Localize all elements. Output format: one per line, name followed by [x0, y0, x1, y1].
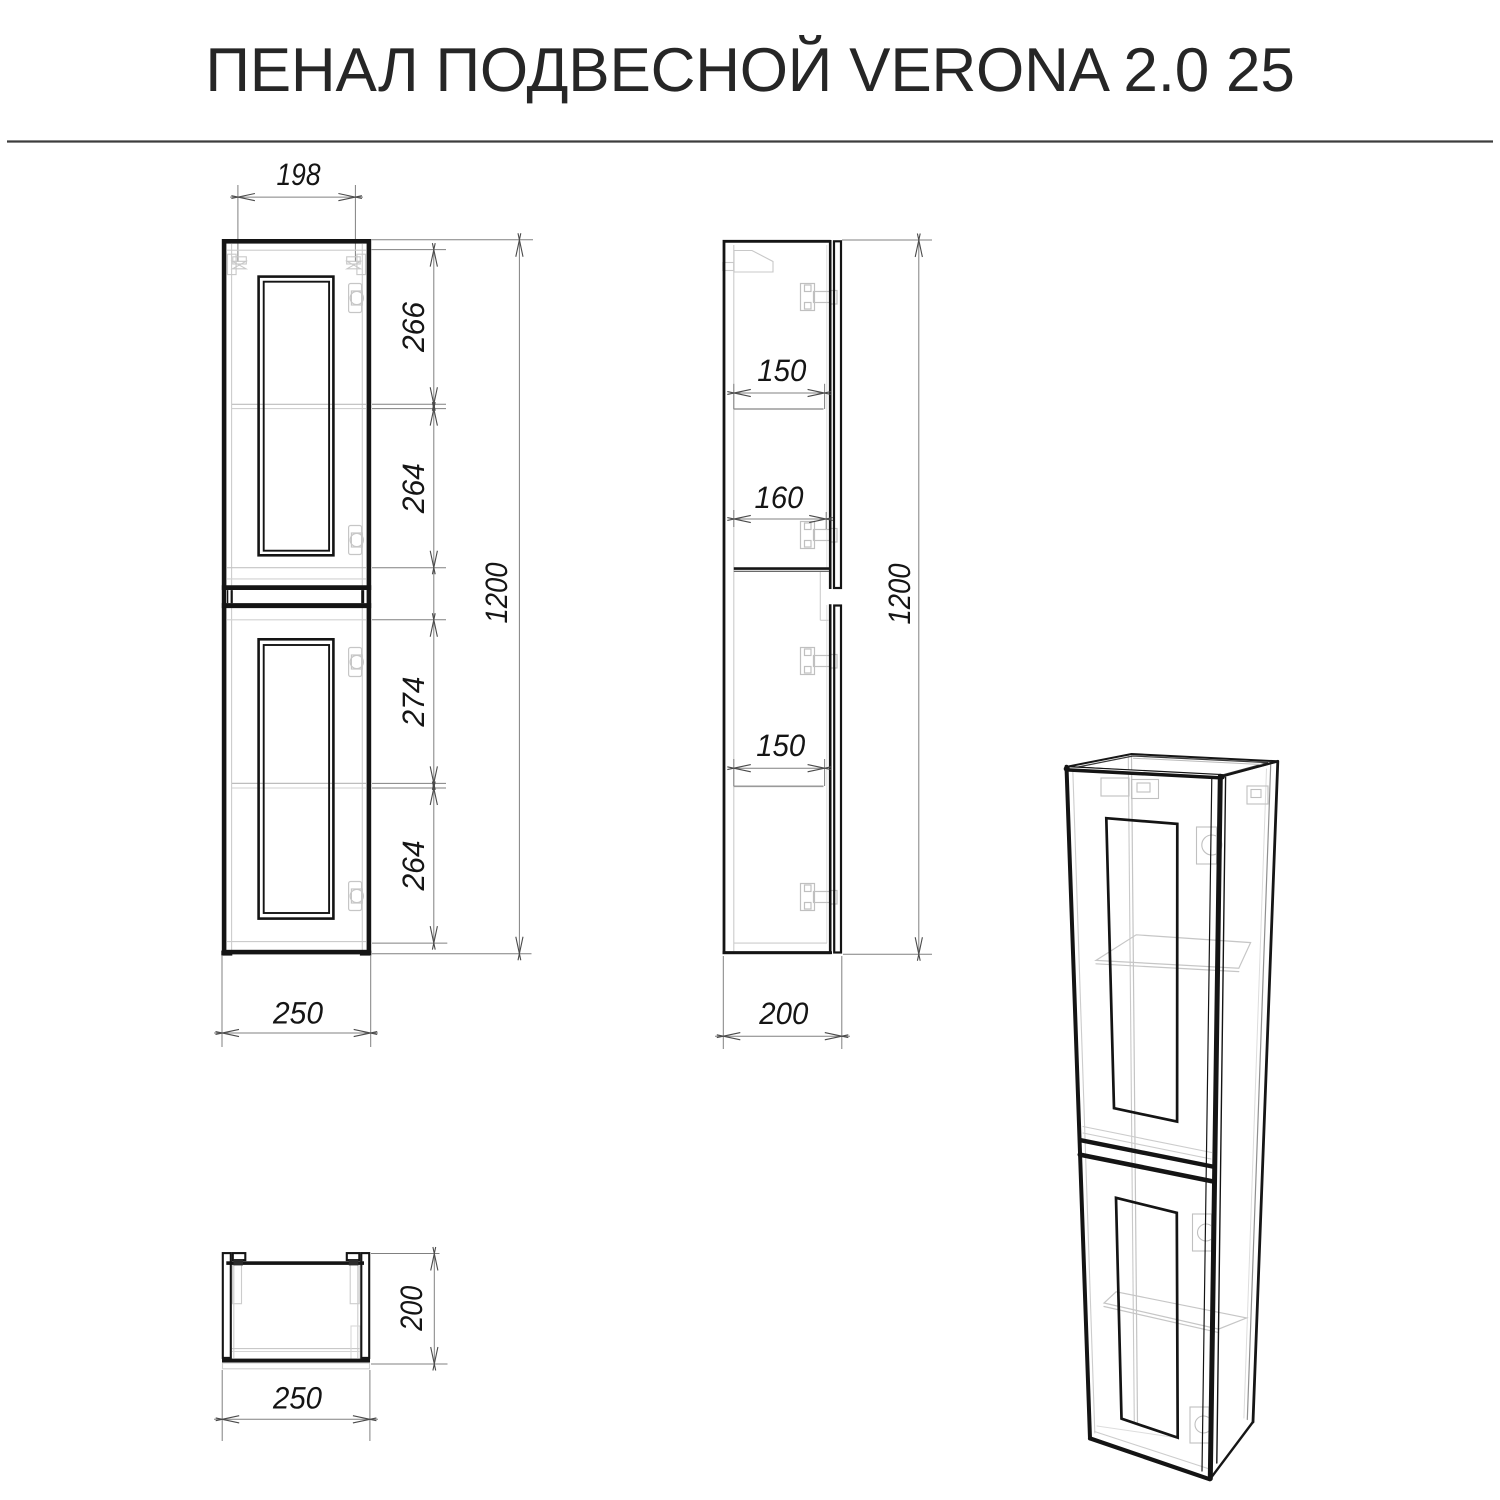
svg-text:1200: 1200 [882, 564, 917, 625]
svg-text:150: 150 [756, 728, 805, 763]
svg-text:200: 200 [394, 1286, 429, 1332]
svg-text:250: 250 [272, 996, 323, 1031]
svg-text:198: 198 [277, 157, 322, 192]
svg-text:264: 264 [396, 463, 431, 514]
svg-text:160: 160 [755, 480, 804, 515]
svg-text:ПЕНАЛ ПОДВЕСНОЙ VERONA 2.0 25: ПЕНАЛ ПОДВЕСНОЙ VERONA 2.0 25 [205, 35, 1294, 105]
svg-text:200: 200 [758, 996, 808, 1031]
svg-text:150: 150 [757, 353, 806, 388]
svg-text:274: 274 [396, 677, 431, 728]
svg-text:250: 250 [272, 1380, 322, 1415]
svg-text:266: 266 [396, 301, 431, 353]
svg-text:1200: 1200 [479, 563, 514, 624]
svg-text:264: 264 [396, 841, 431, 892]
